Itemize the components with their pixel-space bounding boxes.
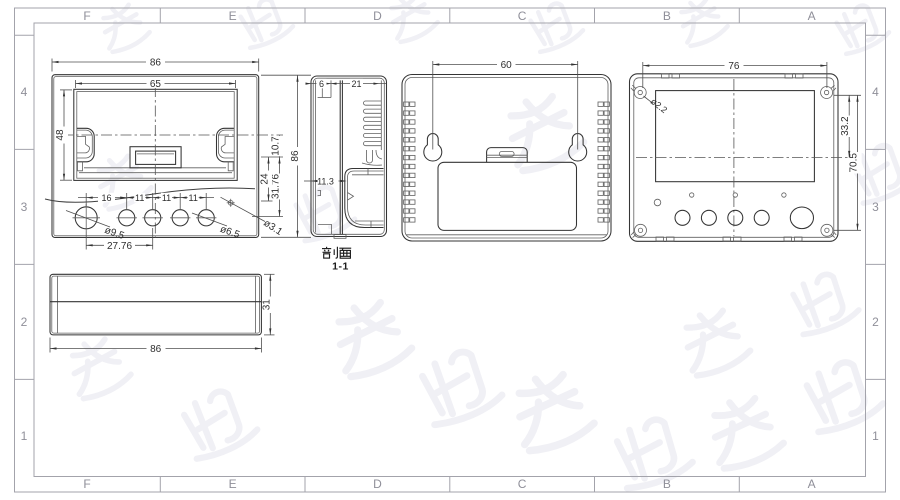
svg-text:1-1: 1-1 (332, 261, 349, 273)
svg-text:86: 86 (150, 58, 162, 69)
svg-text:A: A (808, 9, 816, 23)
svg-text:10.7: 10.7 (270, 136, 281, 156)
svg-text:11: 11 (135, 193, 144, 203)
svg-text:F: F (83, 477, 90, 491)
svg-text:3: 3 (21, 200, 28, 214)
svg-text:86: 86 (290, 150, 301, 162)
svg-text:4: 4 (21, 85, 28, 99)
svg-text:4: 4 (872, 85, 879, 99)
svg-text:21: 21 (351, 79, 361, 89)
svg-text:F: F (83, 9, 90, 23)
svg-text:E: E (229, 9, 237, 23)
svg-text:31: 31 (262, 299, 273, 311)
svg-text:C: C (518, 477, 527, 491)
svg-text:2: 2 (21, 315, 28, 329)
svg-text:6: 6 (319, 79, 324, 89)
svg-text:A: A (808, 477, 816, 491)
svg-text:76: 76 (728, 61, 740, 72)
svg-text:27.76: 27.76 (107, 241, 132, 252)
svg-text:16: 16 (101, 193, 111, 203)
svg-text:1: 1 (21, 429, 28, 443)
svg-text:C: C (518, 9, 527, 23)
svg-text:1: 1 (872, 429, 879, 443)
svg-text:11.3: 11.3 (317, 177, 334, 187)
svg-text:33.2: 33.2 (840, 116, 851, 136)
svg-text:2: 2 (872, 315, 879, 329)
svg-text:48: 48 (55, 129, 66, 141)
svg-text:E: E (229, 477, 237, 491)
svg-text:D: D (373, 9, 382, 23)
svg-text:86: 86 (150, 344, 162, 355)
svg-text:65: 65 (150, 79, 162, 90)
svg-text:3: 3 (872, 200, 879, 214)
svg-text:11: 11 (162, 193, 171, 203)
svg-text:70.5: 70.5 (849, 153, 860, 173)
svg-text:60: 60 (501, 60, 513, 71)
svg-text:11: 11 (189, 193, 198, 203)
svg-text:D: D (373, 477, 382, 491)
svg-text:B: B (663, 477, 671, 491)
svg-text:B: B (663, 9, 671, 23)
svg-text:24: 24 (259, 173, 270, 185)
